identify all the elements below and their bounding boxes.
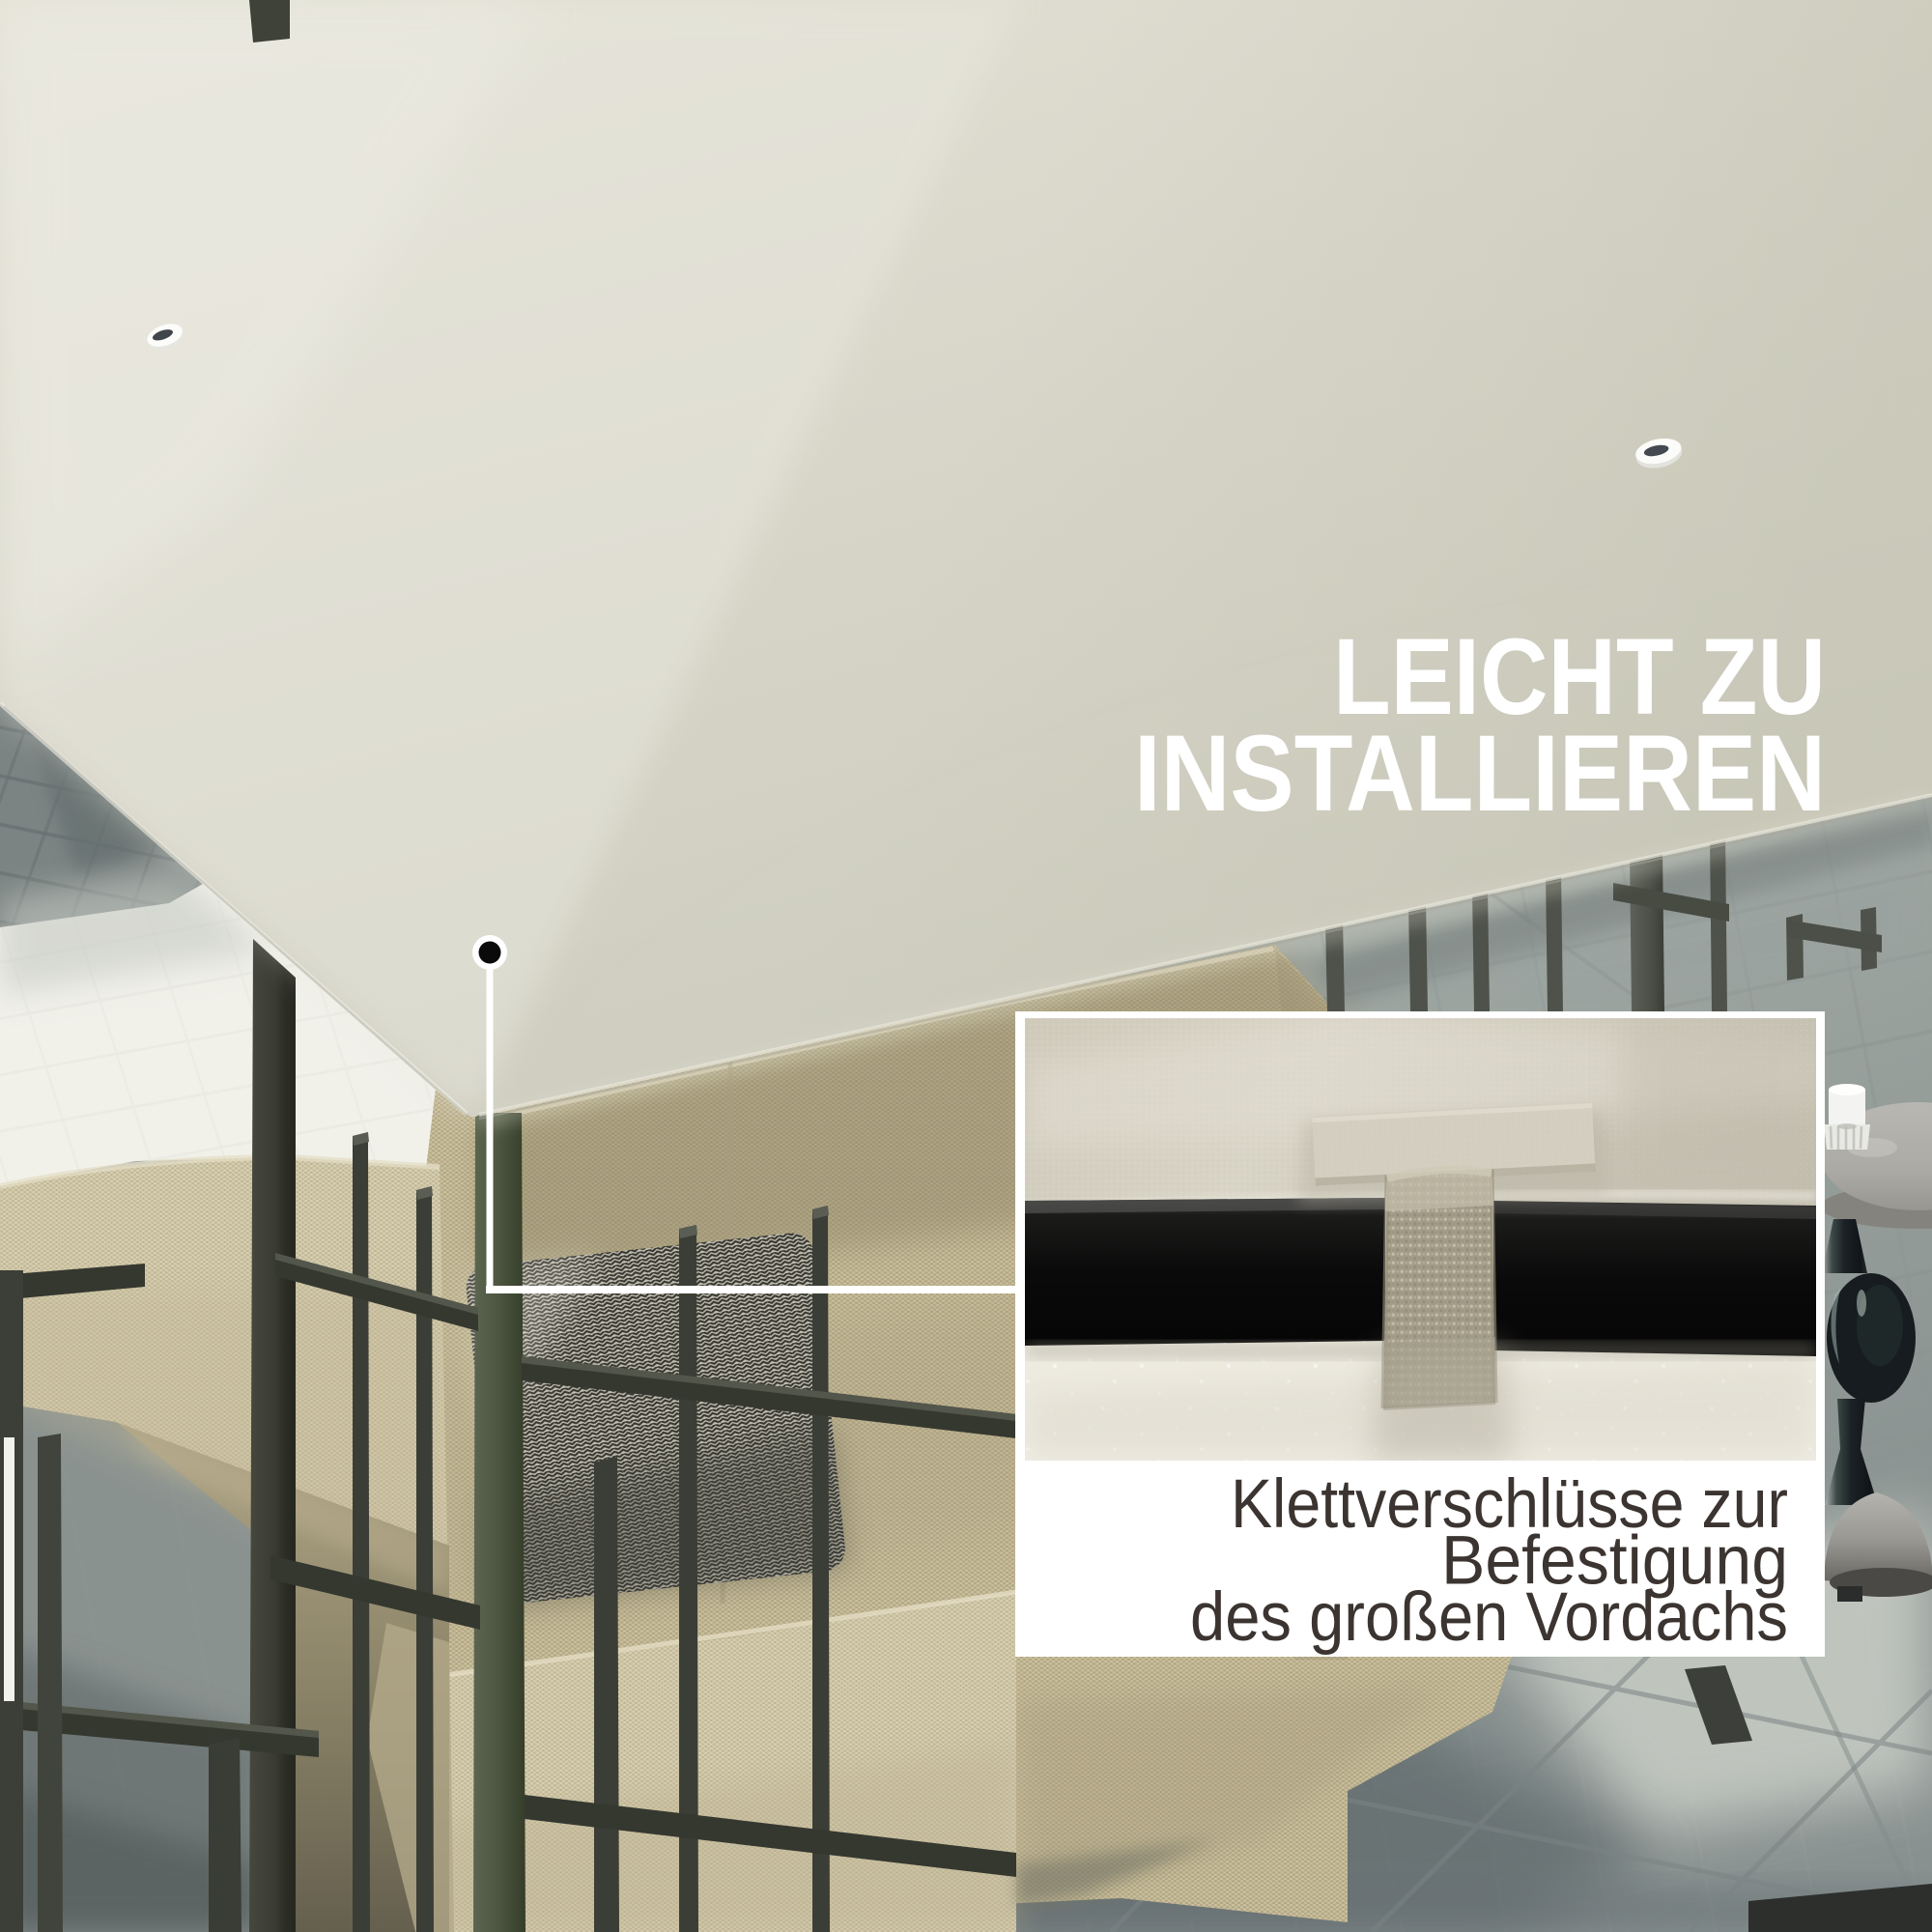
svg-text:INSTALLIEREN: INSTALLIEREN: [1134, 713, 1826, 834]
svg-text:des großen Vordachs: des großen Vordachs: [1190, 1579, 1788, 1656]
